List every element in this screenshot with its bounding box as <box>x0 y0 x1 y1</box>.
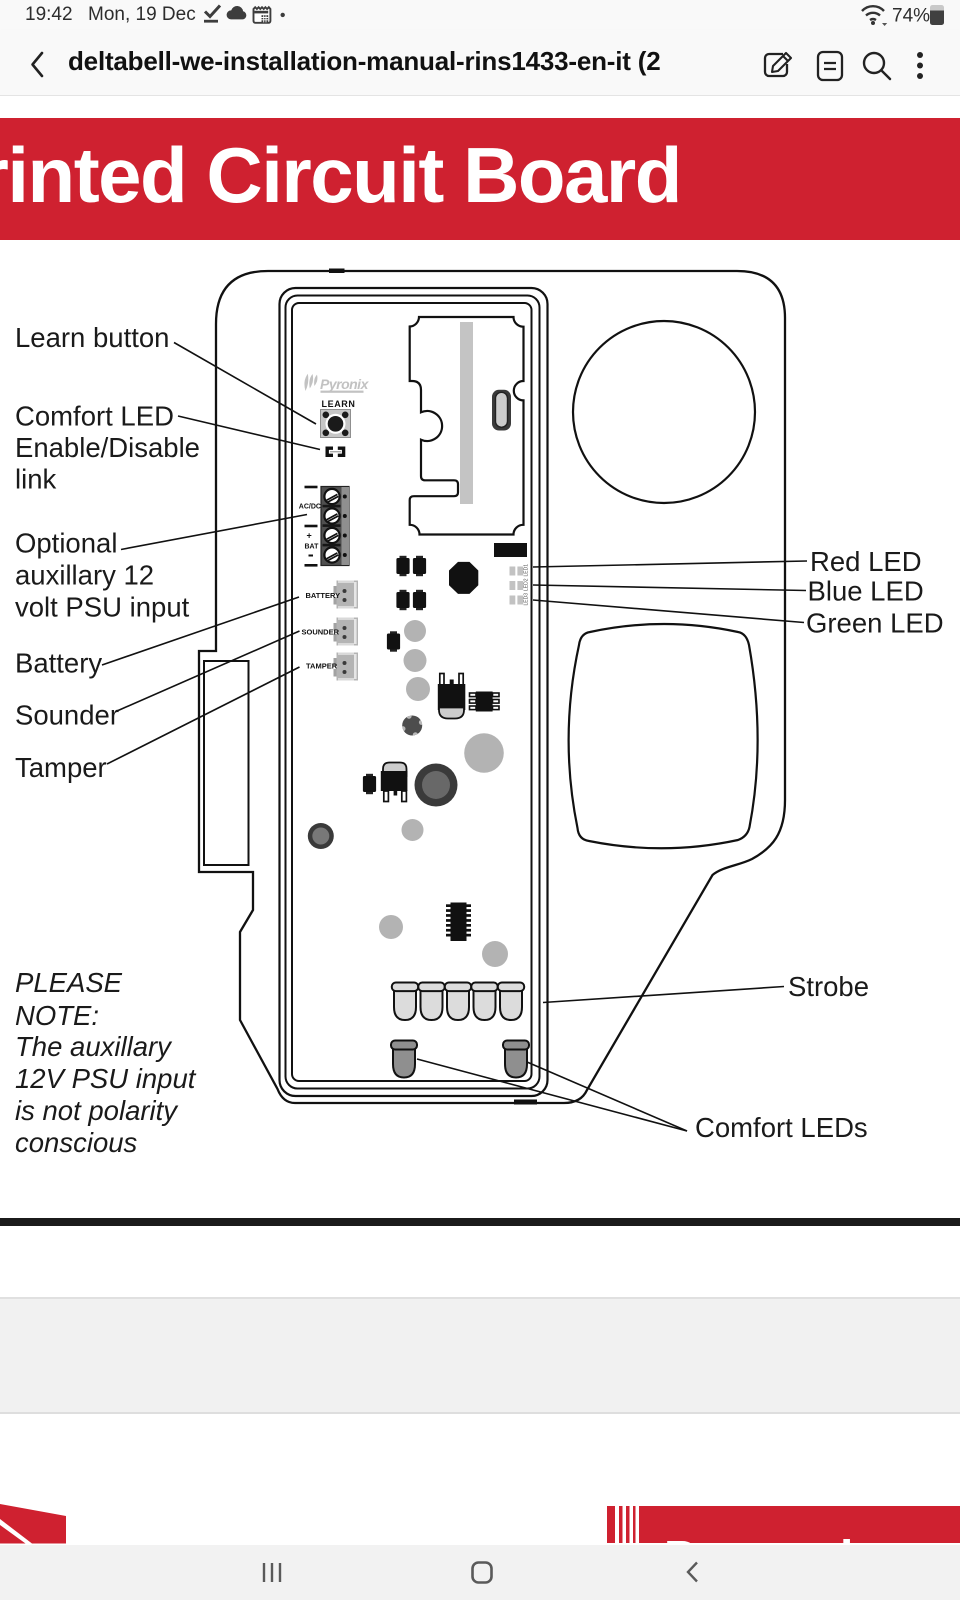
svg-text:is not polarity: is not polarity <box>15 1095 179 1126</box>
svg-text:LEARN: LEARN <box>322 399 356 409</box>
svg-text:link: link <box>15 464 57 495</box>
svg-text:The auxillary: The auxillary <box>15 1031 173 1062</box>
svg-text:volt PSU input: volt PSU input <box>15 592 190 623</box>
svg-text:BAT: BAT <box>305 544 320 551</box>
svg-text:auxillary 12: auxillary 12 <box>15 560 154 591</box>
svg-text:SOUNDER: SOUNDER <box>302 628 340 637</box>
svg-text:NOTE:: NOTE: <box>15 1000 99 1031</box>
svg-text:Printed Circuit Board: Printed Circuit Board <box>0 131 681 219</box>
svg-text:conscious: conscious <box>15 1127 138 1158</box>
svg-text:LED3: LED3 <box>524 593 530 606</box>
svg-text:Learn button: Learn button <box>15 322 169 353</box>
svg-text:Battery: Battery <box>15 648 102 679</box>
svg-text:Comfort LED: Comfort LED <box>15 401 174 432</box>
svg-text:LED1: LED1 <box>524 564 530 577</box>
svg-text:Blue LED: Blue LED <box>808 576 924 607</box>
svg-text:Pyronix: Pyronix <box>320 376 370 392</box>
svg-text:Enable/Disable: Enable/Disable <box>15 432 200 463</box>
svg-text:Optional: Optional <box>15 528 117 559</box>
svg-text:12V PSU input: 12V PSU input <box>15 1063 197 1094</box>
svg-text:TAMPER: TAMPER <box>306 662 338 671</box>
svg-text:74%: 74% <box>892 6 930 27</box>
svg-text:Strobe: Strobe <box>788 971 869 1002</box>
svg-text:Tamper: Tamper <box>15 752 107 783</box>
svg-text:BATTERY: BATTERY <box>306 591 341 600</box>
svg-text:Red LED: Red LED <box>810 546 922 577</box>
svg-text:+: + <box>307 531 312 541</box>
svg-text:Comfort LEDs: Comfort LEDs <box>695 1112 868 1143</box>
svg-text:Green LED: Green LED <box>806 608 944 639</box>
svg-text:AC/DC: AC/DC <box>299 504 321 511</box>
svg-text:Pyronix: Pyronix <box>664 1532 896 1545</box>
svg-text:LED2: LED2 <box>524 578 530 591</box>
svg-text:Sounder: Sounder <box>15 700 119 731</box>
svg-text:PLEASE: PLEASE <box>15 967 123 998</box>
